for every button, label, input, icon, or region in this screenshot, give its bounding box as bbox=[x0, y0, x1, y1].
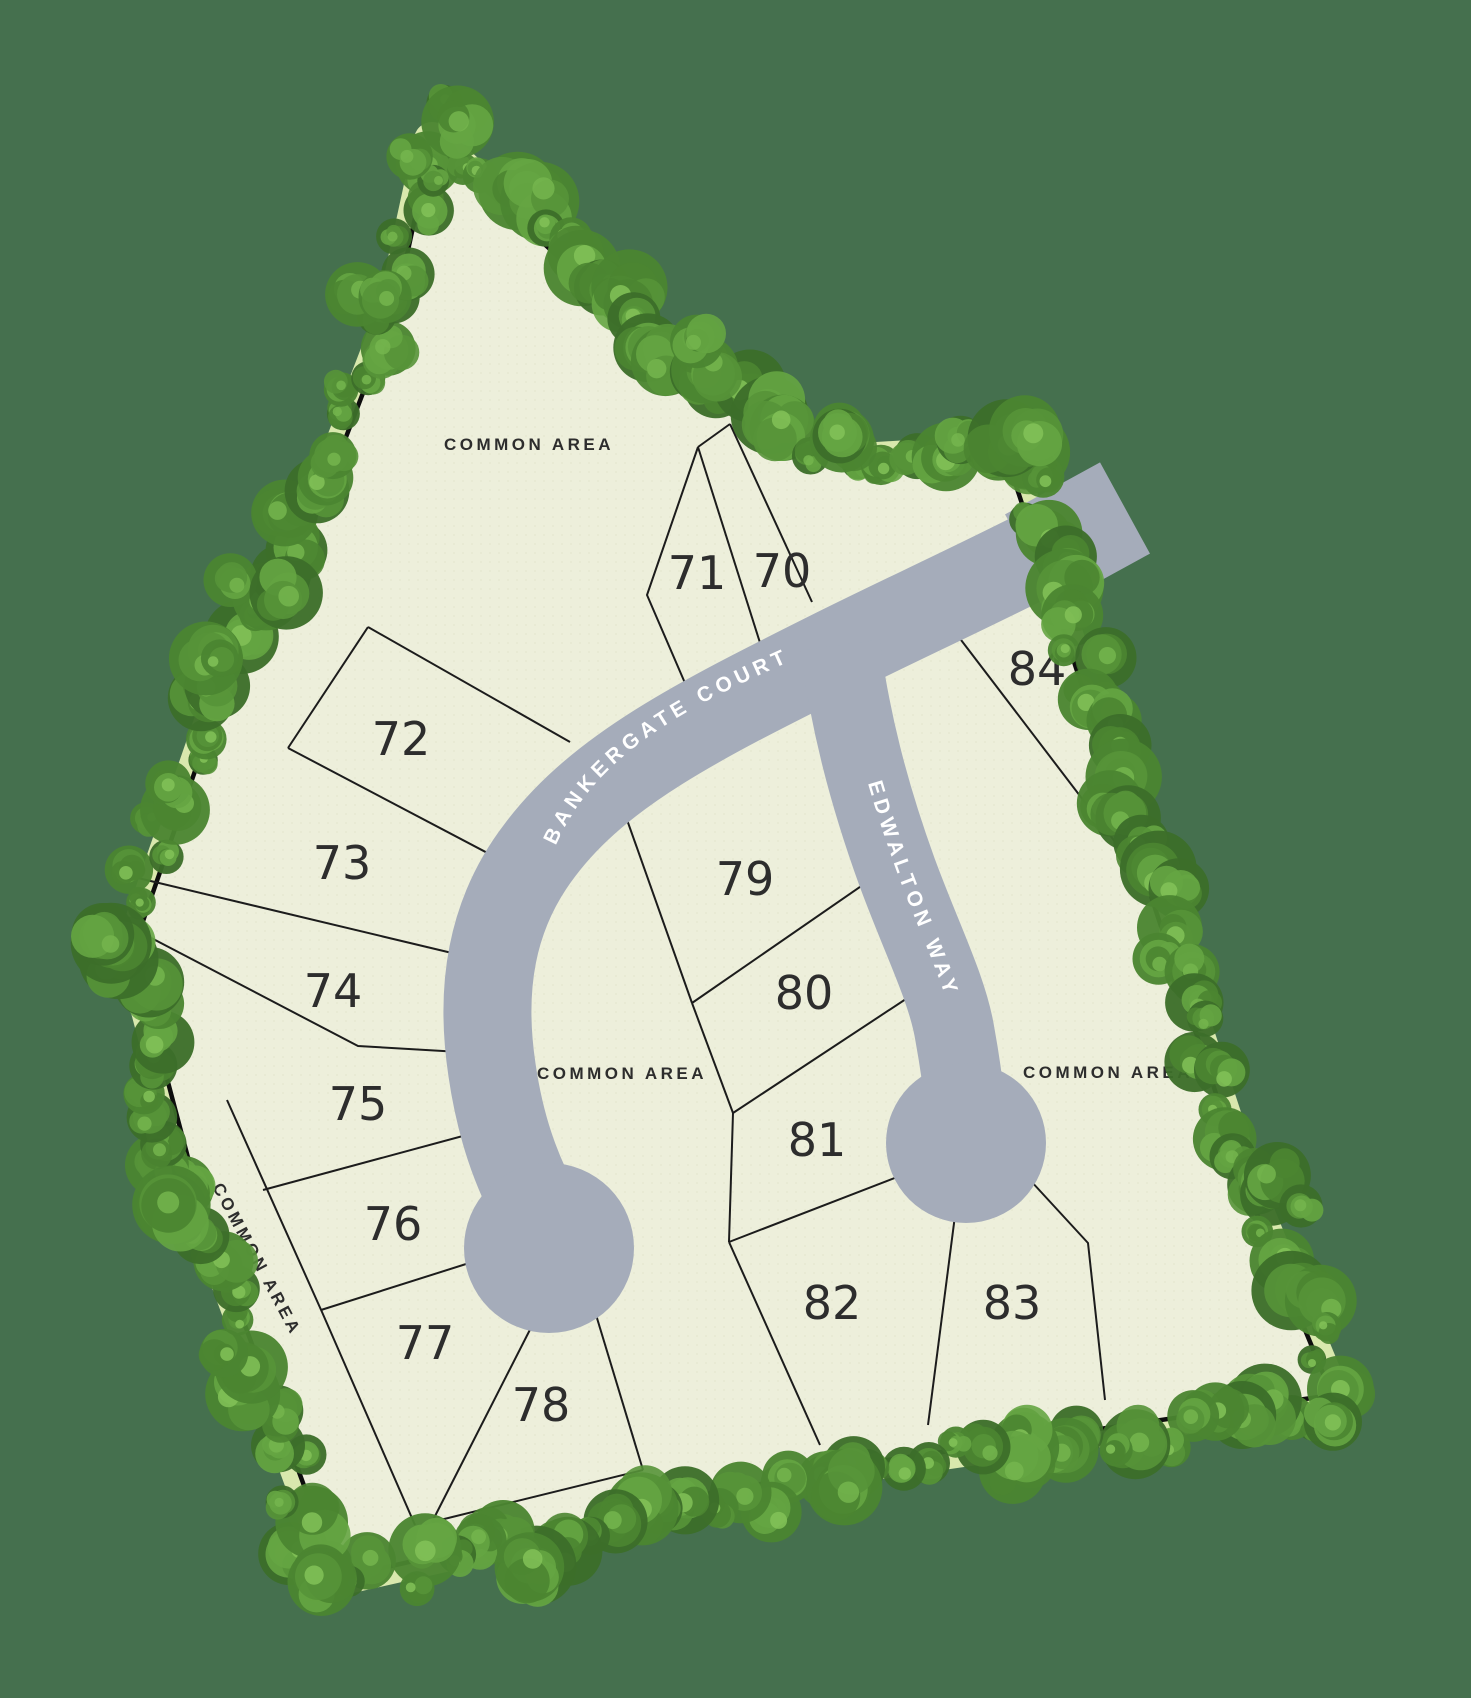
tree-icon bbox=[143, 1091, 155, 1103]
tree-icon bbox=[949, 1438, 958, 1447]
tree-icon bbox=[471, 1529, 486, 1544]
tree-icon bbox=[229, 578, 244, 593]
tree-icon bbox=[421, 203, 435, 217]
tree-icon bbox=[136, 899, 144, 907]
tree-icon bbox=[220, 1347, 234, 1361]
tree-icon bbox=[1216, 1071, 1232, 1087]
tree-icon bbox=[275, 1498, 284, 1507]
tree-icon bbox=[736, 1488, 753, 1505]
tree-icon bbox=[523, 1549, 543, 1569]
tree-icon bbox=[1023, 423, 1043, 443]
tree-icon bbox=[1106, 1445, 1115, 1454]
tree-icon bbox=[803, 455, 813, 465]
tree-icon bbox=[336, 381, 346, 391]
lot-label-80: 80 bbox=[775, 966, 834, 1020]
tree-icon bbox=[830, 425, 845, 440]
tree-icon bbox=[302, 1512, 322, 1532]
tree-icon bbox=[235, 1320, 244, 1329]
tree-icon bbox=[126, 1084, 143, 1101]
common-area-label: COMMON AREA bbox=[444, 435, 614, 454]
tree-icon bbox=[1319, 1321, 1327, 1329]
site-plan-svg: COMMON AREA bbox=[0, 0, 1471, 1698]
lot-label-75: 75 bbox=[329, 1077, 388, 1131]
edwalton-cul-de-sac bbox=[886, 1063, 1046, 1223]
tree-icon bbox=[400, 150, 413, 163]
tree-icon bbox=[838, 1482, 859, 1503]
tree-icon bbox=[278, 586, 299, 607]
lot-label-77: 77 bbox=[396, 1316, 455, 1370]
tree-icon bbox=[102, 935, 120, 953]
tree-icon bbox=[1184, 1409, 1199, 1424]
tree-icon bbox=[770, 1512, 787, 1529]
tree-icon bbox=[1040, 475, 1052, 487]
lot-label-79: 79 bbox=[716, 852, 775, 906]
lot-label-78: 78 bbox=[512, 1378, 571, 1432]
tree-icon bbox=[1065, 606, 1082, 623]
tree-icon bbox=[1152, 957, 1167, 972]
tree-icon bbox=[1099, 647, 1116, 664]
tree-icon bbox=[146, 1036, 164, 1054]
tree-icon bbox=[388, 232, 398, 242]
tree-icon bbox=[1325, 1414, 1341, 1430]
tree-icon bbox=[449, 111, 469, 131]
tree-icon bbox=[647, 359, 666, 378]
tree-icon bbox=[532, 177, 554, 199]
lot-label-72: 72 bbox=[372, 712, 431, 766]
tree-icon bbox=[878, 463, 889, 474]
tree-icon bbox=[157, 1191, 179, 1213]
tree-icon bbox=[362, 375, 372, 385]
tree-icon bbox=[434, 176, 443, 185]
tree-icon bbox=[1005, 1462, 1024, 1481]
common-area-label: COMMON AREA bbox=[537, 1064, 707, 1083]
tree-icon bbox=[406, 1583, 416, 1593]
tree-icon bbox=[539, 217, 549, 227]
tree-icon bbox=[362, 1550, 378, 1566]
tree-icon bbox=[153, 1143, 166, 1156]
tree-icon bbox=[899, 1467, 911, 1479]
lot-label-76: 76 bbox=[364, 1197, 423, 1251]
lot-label-74: 74 bbox=[304, 964, 363, 1018]
tree-icon bbox=[777, 1468, 792, 1483]
tree-icon bbox=[162, 778, 175, 791]
lot-label-71: 71 bbox=[668, 546, 727, 600]
tree-icon bbox=[1308, 1359, 1316, 1367]
bankergate-cul-de-sac bbox=[464, 1163, 634, 1333]
tree-icon bbox=[165, 850, 175, 860]
lot-label-82: 82 bbox=[803, 1276, 862, 1330]
tree-icon bbox=[686, 335, 701, 350]
tree-icon bbox=[951, 433, 965, 447]
lot-label-81: 81 bbox=[788, 1113, 847, 1167]
tree-icon bbox=[1061, 644, 1070, 653]
site-plan-map: COMMON AREA bbox=[0, 0, 1471, 1698]
tree-icon bbox=[982, 1445, 997, 1460]
tree-icon bbox=[772, 411, 791, 430]
lot-label-70: 70 bbox=[753, 544, 812, 598]
tree-icon bbox=[1257, 1165, 1276, 1184]
lot-label-73: 73 bbox=[313, 836, 372, 890]
tree-icon bbox=[414, 1576, 432, 1594]
tree-icon bbox=[375, 339, 390, 354]
tree-icon bbox=[205, 731, 216, 742]
lot-label-83: 83 bbox=[983, 1276, 1042, 1330]
tree-icon bbox=[327, 453, 340, 466]
tree-icon bbox=[208, 656, 219, 667]
tree-icon bbox=[333, 407, 342, 416]
tree-icon bbox=[1294, 1199, 1306, 1211]
tree-icon bbox=[415, 1541, 436, 1562]
tree-icon bbox=[305, 1566, 324, 1585]
tree-icon bbox=[268, 501, 287, 520]
tree-icon bbox=[119, 866, 133, 880]
tree-icon bbox=[1198, 1019, 1208, 1029]
tree-icon bbox=[137, 1117, 151, 1131]
tree-icon bbox=[379, 291, 394, 306]
